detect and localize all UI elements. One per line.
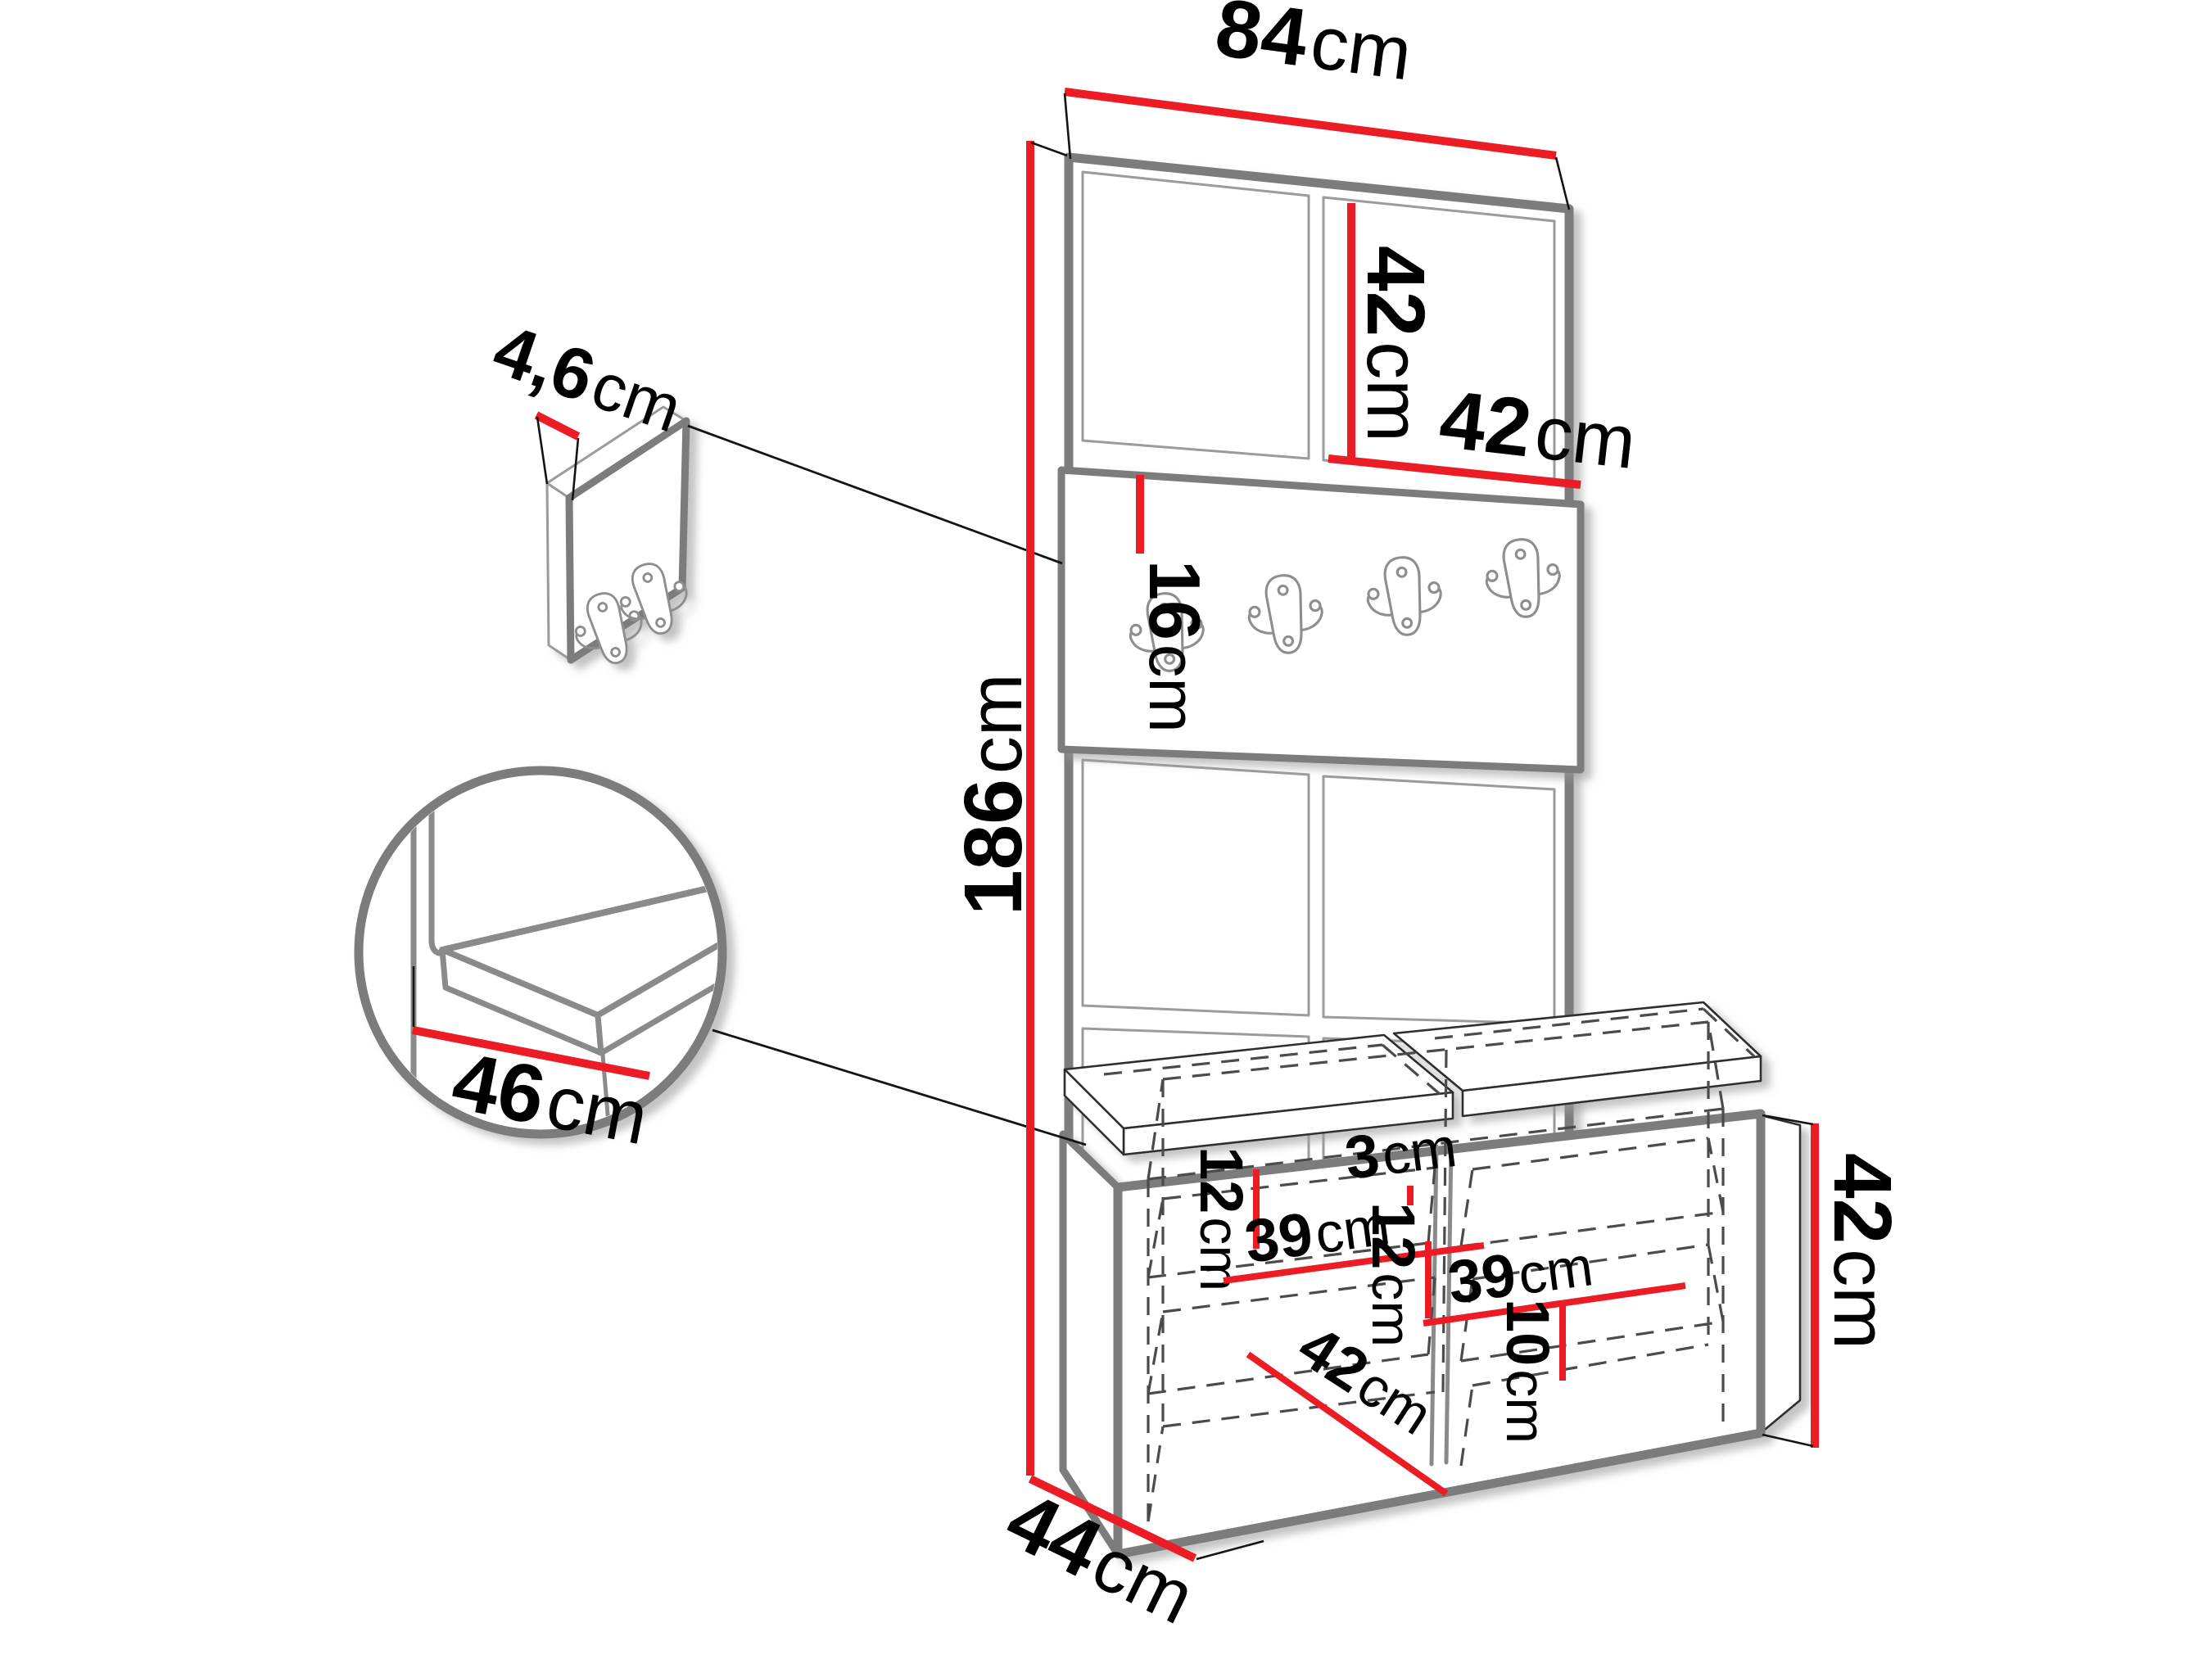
- dim-hook-rail-height-label: 16cm: [1134, 560, 1215, 733]
- upholstered-square-mid-right: [1323, 776, 1554, 1024]
- furniture-dimension-diagram: 84cm 42cm 42cm 16cm 186cm 4,6cm: [0, 0, 2212, 1659]
- dim-upper-panel-height-label: 42cm: [1350, 246, 1441, 442]
- dim-wall-panel-thickness-label: 4,6cm: [484, 308, 693, 447]
- wall-hook-panel-detail: [547, 407, 696, 671]
- dim-top-width-line: [1065, 92, 1556, 156]
- upholstered-square-top-left: [1083, 172, 1309, 459]
- dim-top-width-label: 84cm: [1210, 0, 1417, 97]
- dim-wall-panel-thickness-line: [536, 415, 578, 436]
- dim-right-top-section-height: 12cm: [1359, 1202, 1428, 1347]
- dim-total-height-tick: [1031, 142, 1067, 156]
- upholstered-square-mid-left: [1083, 760, 1309, 1015]
- dim-bench-depth-tick: [1196, 1541, 1264, 1559]
- dim-total-height: 186cm: [948, 141, 1067, 1476]
- dim-total-height-label: 186cm: [948, 674, 1039, 916]
- dim-right-top-section-label: 12cm: [1359, 1202, 1427, 1347]
- dim-bottom-section-height: 10cm: [1494, 1299, 1563, 1444]
- leader-hook-panel-to-rail: [688, 426, 1062, 563]
- bench-right-side-face: [1761, 1115, 1800, 1433]
- dim-bottom-section-label: 10cm: [1494, 1299, 1562, 1444]
- dim-bench-height-label: 42cm: [1816, 1153, 1908, 1349]
- detail-bench-corner-edge: [741, 966, 748, 1056]
